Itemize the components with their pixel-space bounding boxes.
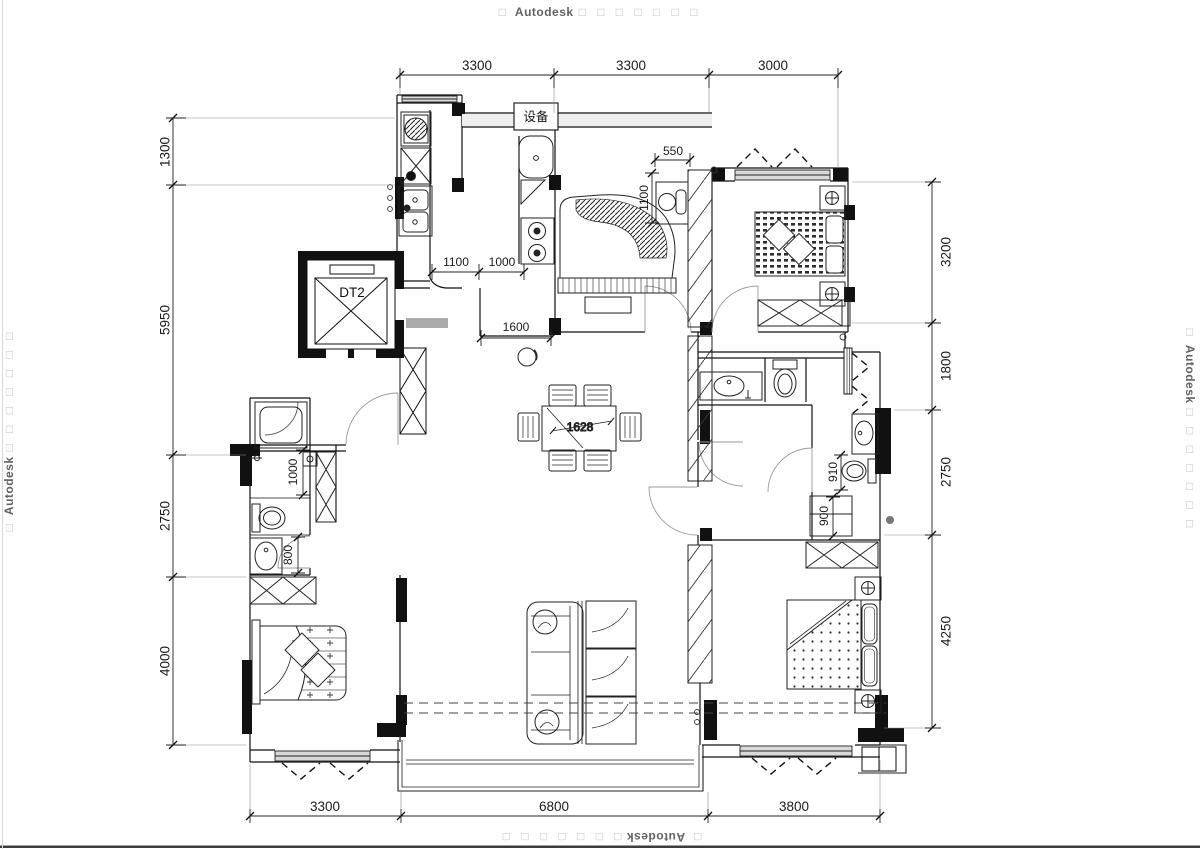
bedroom-bottom-right (787, 577, 881, 713)
dining-chair (549, 450, 576, 471)
bar-basin (519, 136, 553, 178)
headboard (252, 620, 260, 704)
fridge (401, 112, 431, 146)
sofa-bench (586, 601, 636, 744)
equipment-box: 设备 (514, 103, 558, 130)
watermark-boxes: □ □ □ □ □ □ □ (2, 329, 16, 452)
corner-shelf (521, 180, 545, 204)
bedroom-bottom-left (250, 577, 346, 704)
closet-strip (316, 452, 336, 522)
dim-top-2: 3300 (616, 58, 646, 73)
ac-ledge (858, 745, 906, 773)
dim-right-2: 1800 (939, 351, 954, 381)
pillow (826, 216, 843, 243)
watermark-box: □ (499, 5, 510, 19)
nightstand (820, 282, 845, 306)
dim-bath-left-lower: 800 (281, 545, 295, 565)
washbasin (852, 414, 878, 454)
watermark-box: □ (1183, 329, 1197, 340)
watermark-box: □ (690, 830, 701, 844)
bar-counter (519, 136, 554, 264)
living-room-sofas (527, 601, 636, 744)
pillow (826, 246, 843, 273)
bookshelf-column (688, 170, 712, 683)
dining-chair (584, 385, 611, 406)
watermark-top: □Autodesk□ □ □ □ □ □ □ (499, 5, 702, 19)
floor-plan-screenshot: DT2 (0, 0, 1200, 849)
cooktop (521, 218, 554, 264)
dim-left-3: 2750 (158, 501, 173, 531)
table-size-label: 1628 (567, 420, 594, 434)
dim-top-1: 3300 (462, 58, 492, 73)
elevator-dt2: DT2 (298, 251, 448, 434)
beam-dashed-lines (404, 703, 886, 713)
kitchen-cabinet (401, 148, 431, 184)
chair-back (676, 190, 686, 214)
dim-right-1: 3200 (939, 237, 954, 267)
bedroom-top-right (755, 186, 850, 326)
dim-desk-width: 550 (663, 144, 683, 158)
dim-right-3: 2750 (939, 457, 954, 487)
dim-bottom-1: 3300 (310, 799, 340, 814)
dining-chair (620, 413, 641, 441)
nightstand (820, 186, 845, 210)
bottom-edge-line (0, 846, 1200, 849)
entry-door-leaf (844, 348, 852, 394)
watermark-brand: Autodesk (515, 5, 574, 19)
corridor-cabinet (400, 348, 426, 434)
floor-plan-canvas: DT2 (0, 0, 1200, 849)
dim-hallway: 1600 (503, 320, 530, 334)
watermark-brand: Autodesk (2, 456, 16, 515)
dim-bath-right-lower: 900 (817, 506, 831, 526)
dim-kitchen-left: 1100 (443, 255, 469, 269)
watermark-brand: Autodesk (1183, 345, 1197, 404)
dim-kitchen-right: 1000 (489, 255, 516, 269)
wardrobe (758, 300, 850, 326)
ceiling-light-symbol (518, 348, 537, 366)
grand-piano (558, 195, 676, 313)
washbasin (250, 538, 282, 574)
dining-set: 1628 (518, 385, 641, 471)
watermark-boxes: □ □ □ □ □ □ □ (1183, 409, 1197, 532)
watermark-boxes: □ □ □ □ □ □ □ (499, 830, 622, 844)
dim-bath-right-upper: 910 (826, 462, 840, 482)
watermark-bottom: □Autodesk□ □ □ □ □ □ □ (499, 830, 702, 844)
dining-chair (518, 413, 539, 441)
piano-bench (585, 297, 631, 313)
dim-top-3: 3000 (758, 58, 788, 73)
elevator-label: DT2 (339, 285, 365, 300)
dim-left-2: 5950 (158, 305, 173, 335)
dim-left-1: 1300 (158, 137, 173, 167)
dining-chair (584, 450, 611, 471)
watermark-brand: Autodesk (626, 830, 685, 844)
cushion (533, 610, 557, 634)
toilet (252, 504, 285, 532)
watermark-right: □Autodesk□ □ □ □ □ □ □ (1183, 329, 1197, 532)
left-edge-line (2, 0, 3, 849)
watermark-boxes: □ □ □ □ □ □ □ (579, 5, 702, 19)
toilet (773, 360, 797, 397)
dim-bottom-3: 3800 (779, 799, 809, 814)
bath-cabinet-row (806, 542, 878, 568)
dim-bottom-2: 6800 (539, 799, 569, 814)
threshold-step (406, 318, 448, 328)
watermark-box: □ (2, 520, 16, 531)
watermark-left: □Autodesk□ □ □ □ □ □ □ (2, 329, 16, 532)
dim-right-4: 4250 (939, 616, 954, 646)
nightstand (855, 577, 881, 600)
equipment-label: 设备 (523, 109, 549, 124)
wardrobe (250, 577, 316, 604)
dim-desk-depth: 1100 (637, 185, 651, 211)
dim-bath-left-upper: 1000 (286, 458, 300, 485)
toilet (842, 459, 876, 483)
chair-seat (659, 194, 676, 211)
dining-chair (549, 385, 576, 406)
dim-left-4: 4000 (158, 646, 173, 676)
sofa (527, 602, 583, 744)
